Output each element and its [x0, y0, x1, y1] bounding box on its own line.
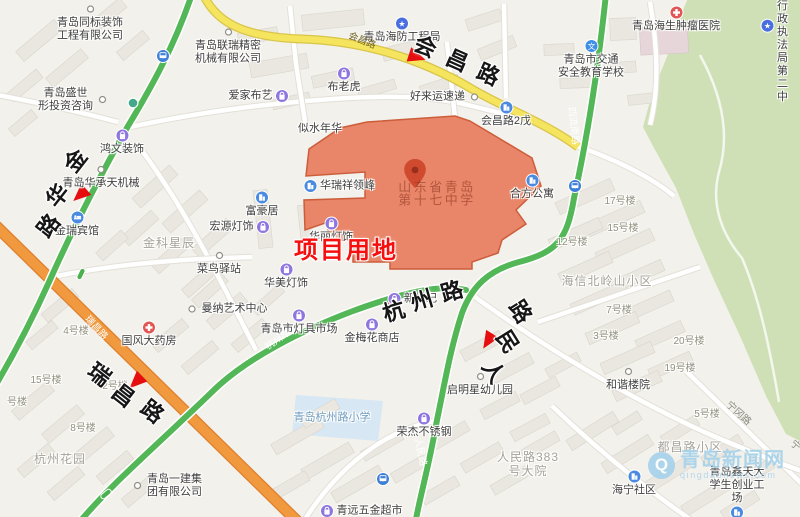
pharm-icon	[142, 320, 157, 335]
poi-label-text: 华美灯饰	[264, 277, 308, 290]
poi-label-text: 海宁社区	[612, 484, 656, 497]
building-number-label: 15号楼	[607, 223, 638, 235]
poi-label[interactable]: ★四方城管行政 执法局第二中	[760, 0, 788, 104]
building-number-label: 4号楼	[63, 326, 89, 338]
poi-label[interactable]: 和谐楼院	[606, 364, 650, 392]
road-name-label: 昌	[442, 45, 473, 78]
dot-icon	[185, 302, 200, 317]
building-number-label: 号楼	[7, 397, 27, 409]
poi-label[interactable]: 华瑞祥领峰	[303, 179, 375, 194]
area-label: 海信北岭山小区	[561, 274, 652, 288]
poi-label[interactable]: 富豪居	[246, 190, 279, 218]
road-name-small-label: 宁冈路	[723, 400, 753, 429]
poi-label-text: 青岛一建集 团有限公司	[147, 473, 202, 499]
road-name-small-label: 宁	[787, 438, 800, 453]
poi-label[interactable]: 合方公寓	[510, 173, 554, 201]
road-name-label: 路	[503, 296, 537, 328]
area-label: 金科星辰	[143, 236, 195, 250]
building-number-label: 17号楼	[604, 196, 635, 208]
shop-icon	[365, 317, 380, 332]
poi-label-text: 鸿文装饰	[100, 143, 144, 156]
poi-label-text: 爱家布艺	[229, 90, 273, 103]
road-name-label: 路	[438, 276, 466, 307]
bldg-icon	[303, 179, 318, 194]
poi-label-text: 合方公寓	[510, 188, 554, 201]
qingdaonews-logo-icon: Q	[648, 452, 675, 479]
bldg-icon	[627, 469, 642, 484]
shop-icon	[292, 308, 307, 323]
poi-label-text: 国风大药房	[122, 335, 177, 348]
poi-label-text: 青岛联瑞精密 机械有限公司	[195, 40, 261, 66]
building-number-label: 8号楼	[70, 423, 96, 435]
shop-icon	[320, 504, 335, 517]
poi-label[interactable]: 文青岛市交通 安全教育学校	[558, 39, 624, 80]
poi-label[interactable]: 青岛同标装饰 工程有限公司	[57, 2, 123, 43]
poi-label-text: 菜鸟驿站	[197, 263, 241, 276]
poi-label-text: 荣杰不锈钢	[397, 426, 452, 439]
poi-label[interactable]: 曼纳艺术中心	[185, 302, 268, 317]
dot-icon	[212, 248, 227, 263]
svg-text:文: 文	[587, 41, 595, 51]
shop-icon	[115, 128, 130, 143]
poi-label[interactable]: 布老虎	[328, 66, 361, 94]
poi-label-text: 似水年华	[298, 123, 342, 136]
area-label: 杭州花园	[34, 452, 86, 466]
shop-icon	[256, 220, 271, 235]
dot-icon	[83, 2, 98, 17]
bldg-icon	[499, 100, 514, 115]
poi-label-text: 青岛市交通 安全教育学校	[558, 54, 624, 80]
road-name-label: 州	[408, 285, 436, 316]
poi-label[interactable]: 华美灯饰	[264, 262, 308, 290]
poi-label[interactable]: 宏源灯饰	[210, 220, 271, 235]
bldg-icon	[730, 505, 745, 517]
poi-label[interactable]: 好来运速递	[410, 90, 482, 105]
area-label: 人民路383 号大院	[497, 450, 559, 478]
poi-label[interactable]: 会昌路2戊	[481, 100, 531, 128]
poi-label[interactable]: 青远五金超市	[320, 504, 403, 517]
road-name-small-label: 人民路	[412, 437, 429, 467]
poi-label[interactable]: 鸿文装饰	[100, 128, 144, 156]
poi-label[interactable]: 荣杰不锈钢	[397, 411, 452, 439]
poi-label-text: 布老虎	[328, 81, 361, 94]
poi-label[interactable]: 青岛一建集 团有限公司	[130, 473, 202, 499]
map-labels-layer: 青岛同标装饰 工程有限公司青岛联瑞精密 机械有限公司青岛盛世 形投资咨询爱家布艺…	[0, 0, 800, 517]
shop-icon	[324, 216, 339, 231]
building-number-label: 7号楼	[606, 305, 632, 317]
poi-label-text: 和谐楼院	[606, 379, 650, 392]
poi-label[interactable]: 爱家布艺	[229, 89, 290, 104]
building-number-label: 15号楼	[30, 375, 61, 387]
watermark-qingdaonews: Q 青岛新闻网 qingdaonews.com	[648, 450, 785, 481]
road-name-label: 民	[490, 326, 524, 358]
school-icon: 文	[584, 39, 599, 54]
project-site-name: 第十七中学	[398, 192, 476, 207]
road-name-label: 路	[135, 395, 168, 429]
poi-label-text: 富豪居	[246, 205, 279, 218]
building-number-label: 19号楼	[664, 363, 695, 375]
poi-label[interactable]: 青岛市灯具市场	[261, 308, 338, 336]
poi-label-text: 启明星幼儿园	[447, 384, 513, 397]
watermark-title: 青岛新闻网	[680, 450, 785, 470]
poi-label-text: 青岛市灯具市场	[261, 323, 338, 336]
logo-letter: Q	[655, 455, 668, 475]
star-icon: ★	[395, 16, 410, 31]
dot-icon	[95, 93, 110, 108]
svg-text:★: ★	[764, 22, 771, 31]
poi-label-text: 青岛盛世 形投资咨询	[38, 87, 93, 113]
shop-icon	[279, 262, 294, 277]
poi-label-text: 金梅花商店	[345, 332, 400, 345]
watermark-subtitle: qingdaonews.com	[680, 470, 785, 481]
poi-label-text: 好来运速递	[410, 91, 465, 104]
svg-text:★: ★	[398, 20, 405, 29]
bldg-icon	[255, 190, 270, 205]
poi-label-text: 曼纳艺术中心	[202, 303, 268, 316]
poi-label-text: 华瑞祥领峰	[320, 180, 375, 193]
building-number-label: 3号楼	[593, 331, 619, 343]
road-name-small-label: 四流南路	[565, 107, 580, 146]
dot-icon	[467, 90, 482, 105]
poi-label-text: 青远五金超市	[337, 505, 403, 517]
poi-label-text: 青岛同标装饰 工程有限公司	[57, 17, 123, 43]
poi-label[interactable]: 菜鸟驿站	[197, 248, 241, 276]
building-number-label: 20号楼	[673, 336, 704, 348]
hosp-icon	[669, 5, 684, 20]
star-icon: ★	[760, 19, 775, 34]
project-area-label: 项目用地	[294, 237, 398, 265]
dot-icon	[94, 162, 109, 177]
shop-icon	[275, 89, 290, 104]
building-number-label: 12号楼	[556, 237, 587, 249]
shop-icon	[417, 411, 432, 426]
poi-label-text: 宏源灯饰	[210, 221, 254, 234]
bldg-icon	[525, 173, 540, 188]
poi-label[interactable]: 似水年华	[298, 123, 342, 136]
poi-label[interactable]: 国风大药房	[122, 320, 177, 348]
poi-label-text: 青岛华承天机械	[63, 177, 140, 190]
road-name-label: 路	[473, 59, 504, 92]
poi-label[interactable]: 青岛联瑞精密 机械有限公司	[195, 25, 261, 66]
building-number-label: 5号楼	[694, 409, 720, 421]
dot-icon	[130, 479, 145, 494]
poi-label[interactable]: 青岛盛世 形投资咨询	[38, 87, 110, 113]
dot-icon	[221, 25, 236, 40]
map-canvas[interactable]: 青岛同标装饰 工程有限公司青岛联瑞精密 机械有限公司青岛盛世 形投资咨询爱家布艺…	[0, 0, 800, 517]
poi-label-text: 会昌路2戊	[481, 115, 531, 128]
poi-label-text: 四方城管行政 执法局第二中	[777, 0, 788, 104]
poi-label-text: 青岛海生肿瘤医院	[632, 20, 720, 33]
poi-label[interactable]: 青岛海生肿瘤医院	[632, 5, 720, 33]
school-area-label: 青岛杭州路小学	[294, 412, 371, 425]
shop-icon	[337, 66, 352, 81]
dot-icon	[621, 364, 636, 379]
hotel-icon	[70, 210, 85, 225]
